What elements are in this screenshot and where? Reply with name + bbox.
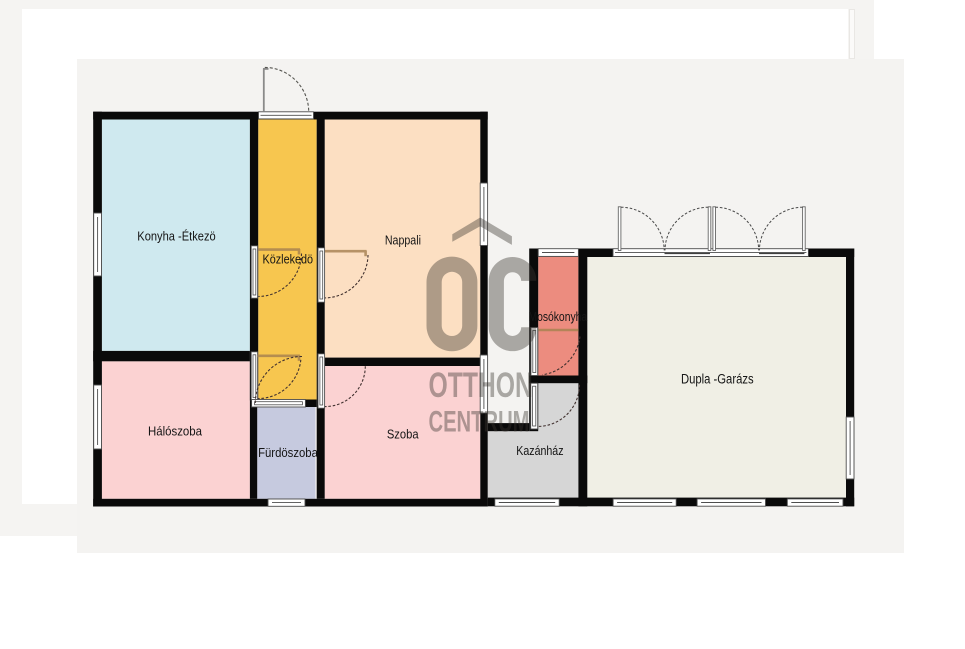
svg-text:Konyha -Étkezö: Konyha -Étkezö [137, 228, 215, 243]
svg-text:Dupla -Garázs: Dupla -Garázs [681, 372, 754, 387]
svg-text:OTTHON: OTTHON [428, 365, 533, 405]
svg-text:Szoba: Szoba [387, 428, 419, 442]
svg-text:Közlekedö: Közlekedö [263, 252, 314, 266]
svg-text:Hálószoba: Hálószoba [148, 425, 202, 439]
svg-text:Kazánház: Kazánház [516, 444, 563, 458]
svg-text:Fürdöszoba: Fürdöszoba [258, 446, 318, 460]
svg-text:CENTRUM: CENTRUM [429, 406, 530, 439]
svg-text:Nappali: Nappali [385, 233, 421, 247]
svg-text:Mosókonyha: Mosókonyha [528, 310, 587, 324]
